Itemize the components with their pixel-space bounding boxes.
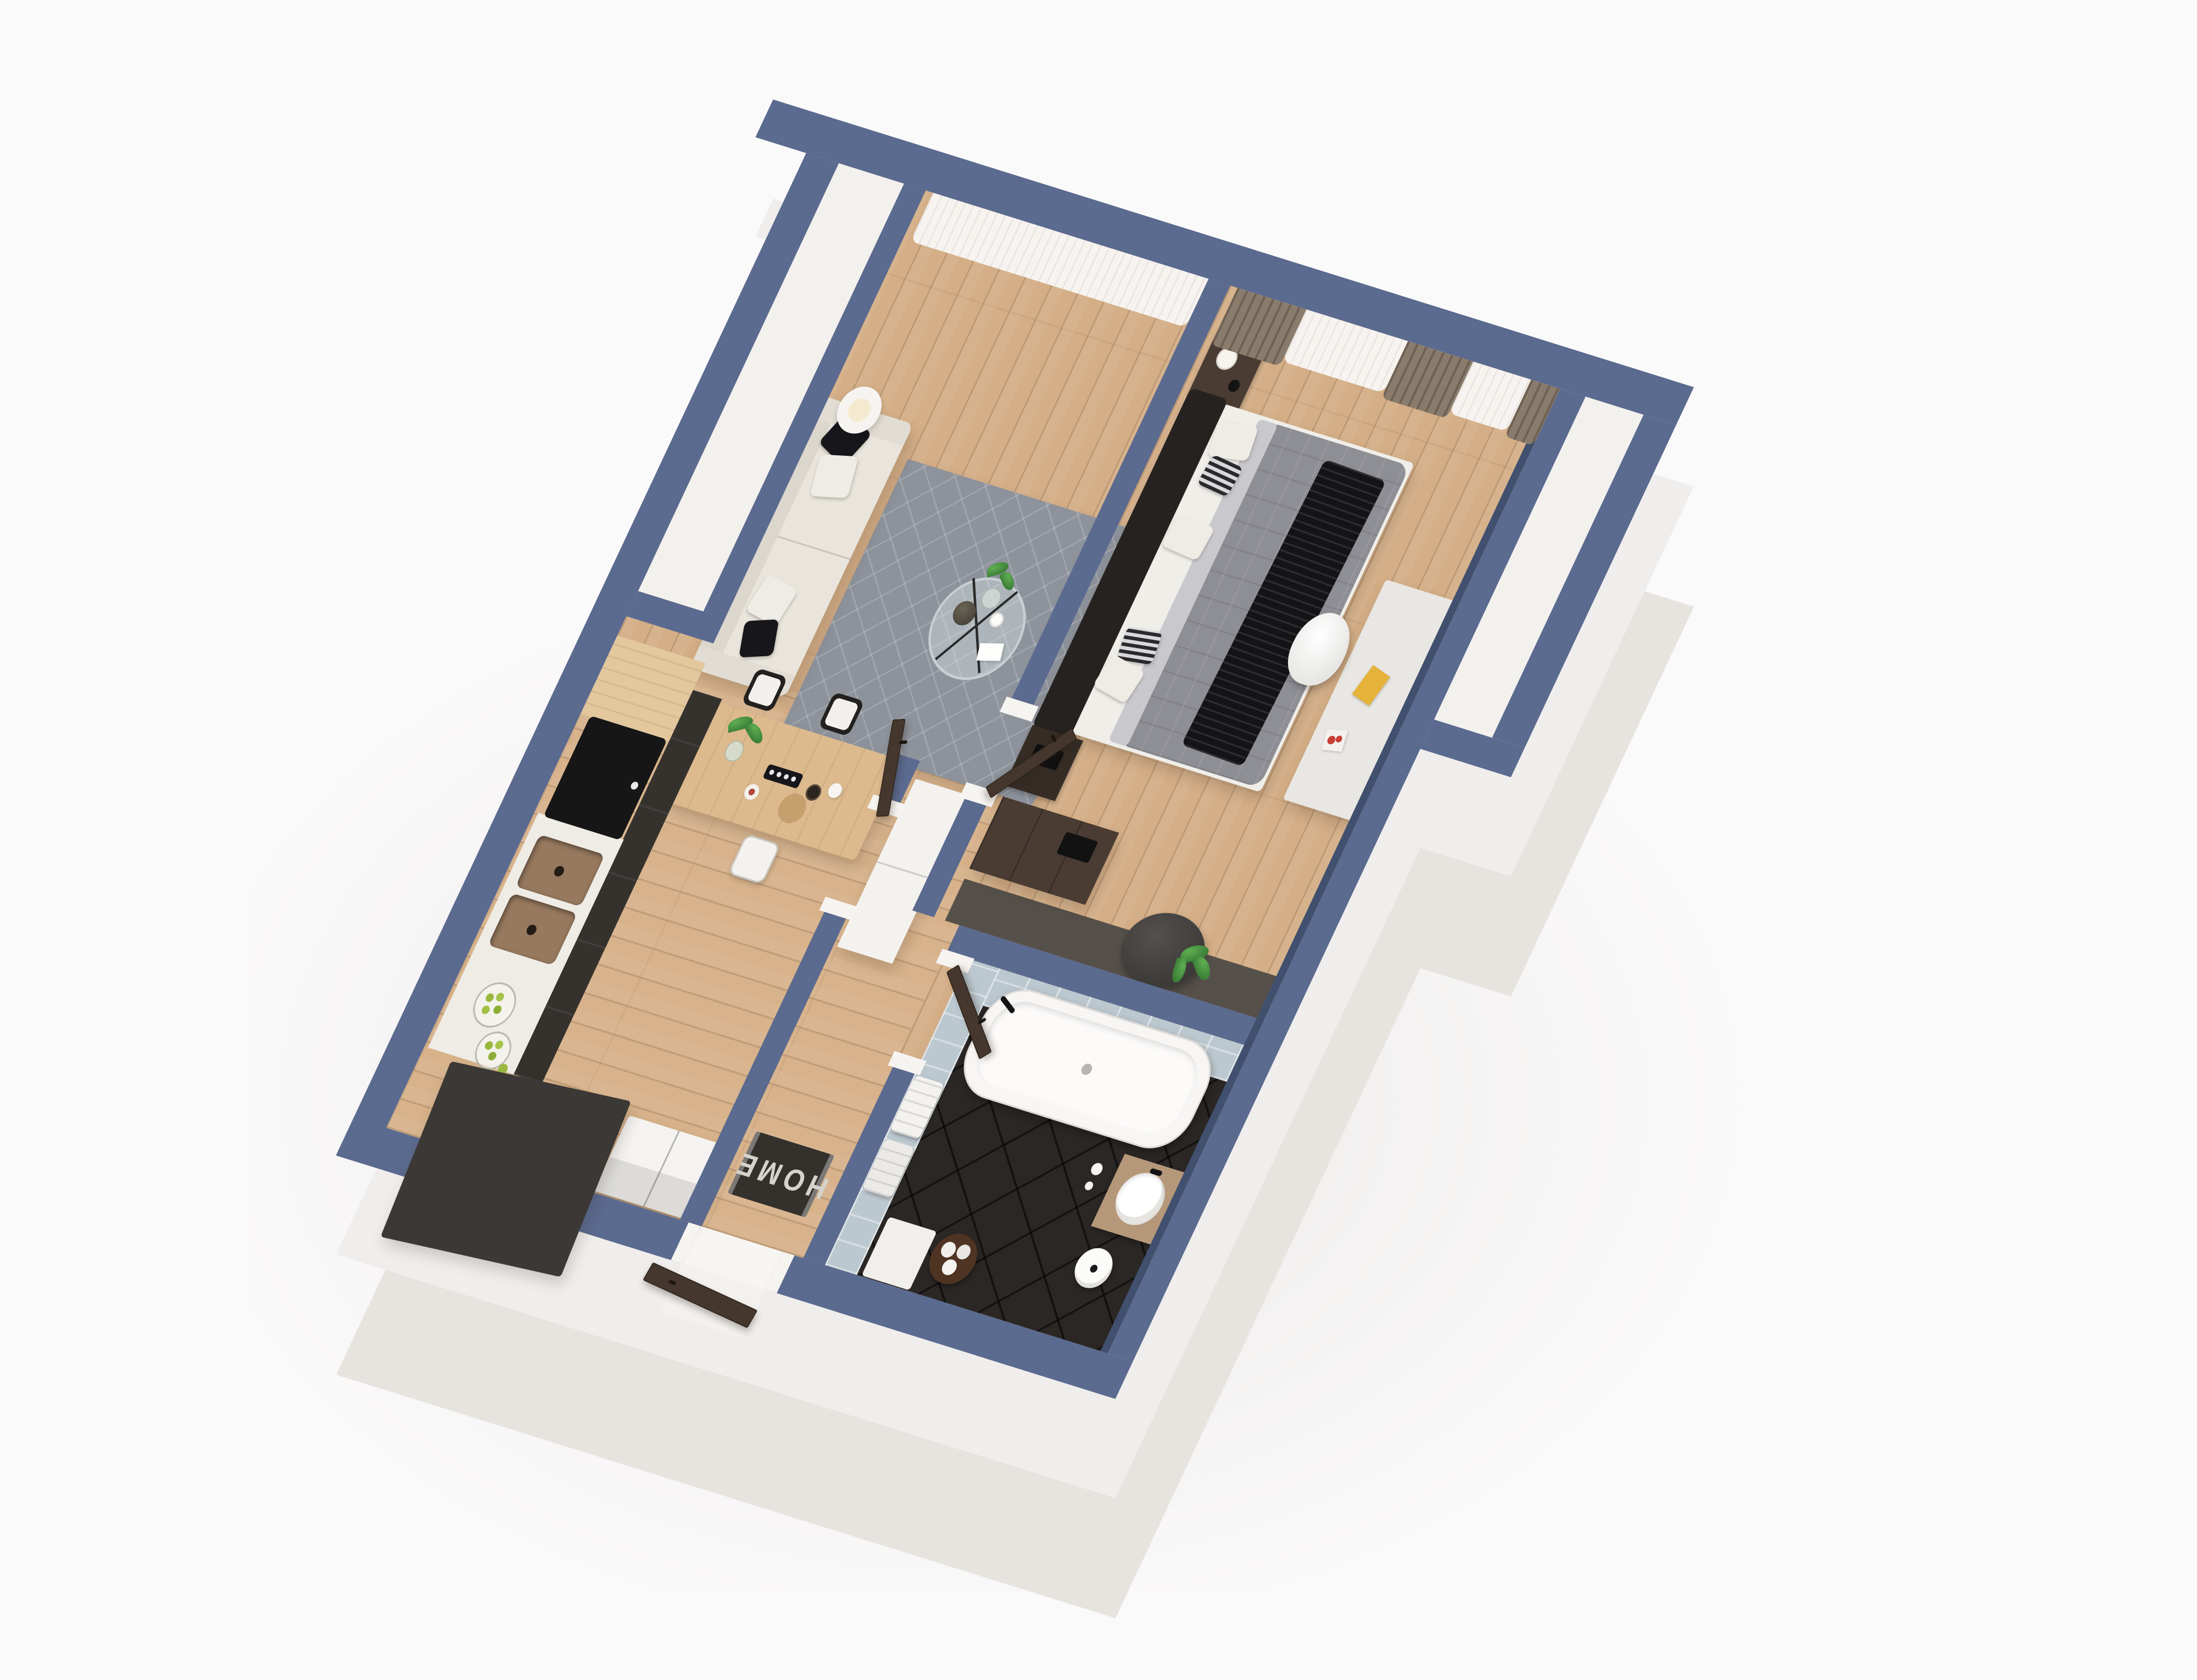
coffee-table-magazine	[976, 643, 1004, 661]
fridge-door-seam	[643, 1131, 680, 1207]
doormat-text: HOME	[728, 1143, 834, 1205]
desk-card-red	[1321, 729, 1347, 751]
bath-stool-button	[1089, 1264, 1098, 1273]
cooktop-knob	[629, 781, 639, 790]
desk-book-yellow	[1352, 665, 1391, 706]
alarm-clock	[1226, 378, 1242, 393]
hall-wardrobe-seam	[877, 861, 933, 880]
towel-roll-2	[954, 1243, 973, 1261]
dresser-tray	[1056, 831, 1098, 863]
floor-plan-scene: HOME	[0, 0, 2197, 1648]
towel-roll-3	[939, 1258, 960, 1277]
sink-drain-1	[553, 865, 566, 878]
sink-drain-2	[525, 924, 538, 936]
sofa-seat-seam	[777, 535, 850, 560]
towel-roll-1	[938, 1240, 958, 1259]
sofa-pillow-black-2	[739, 619, 779, 658]
